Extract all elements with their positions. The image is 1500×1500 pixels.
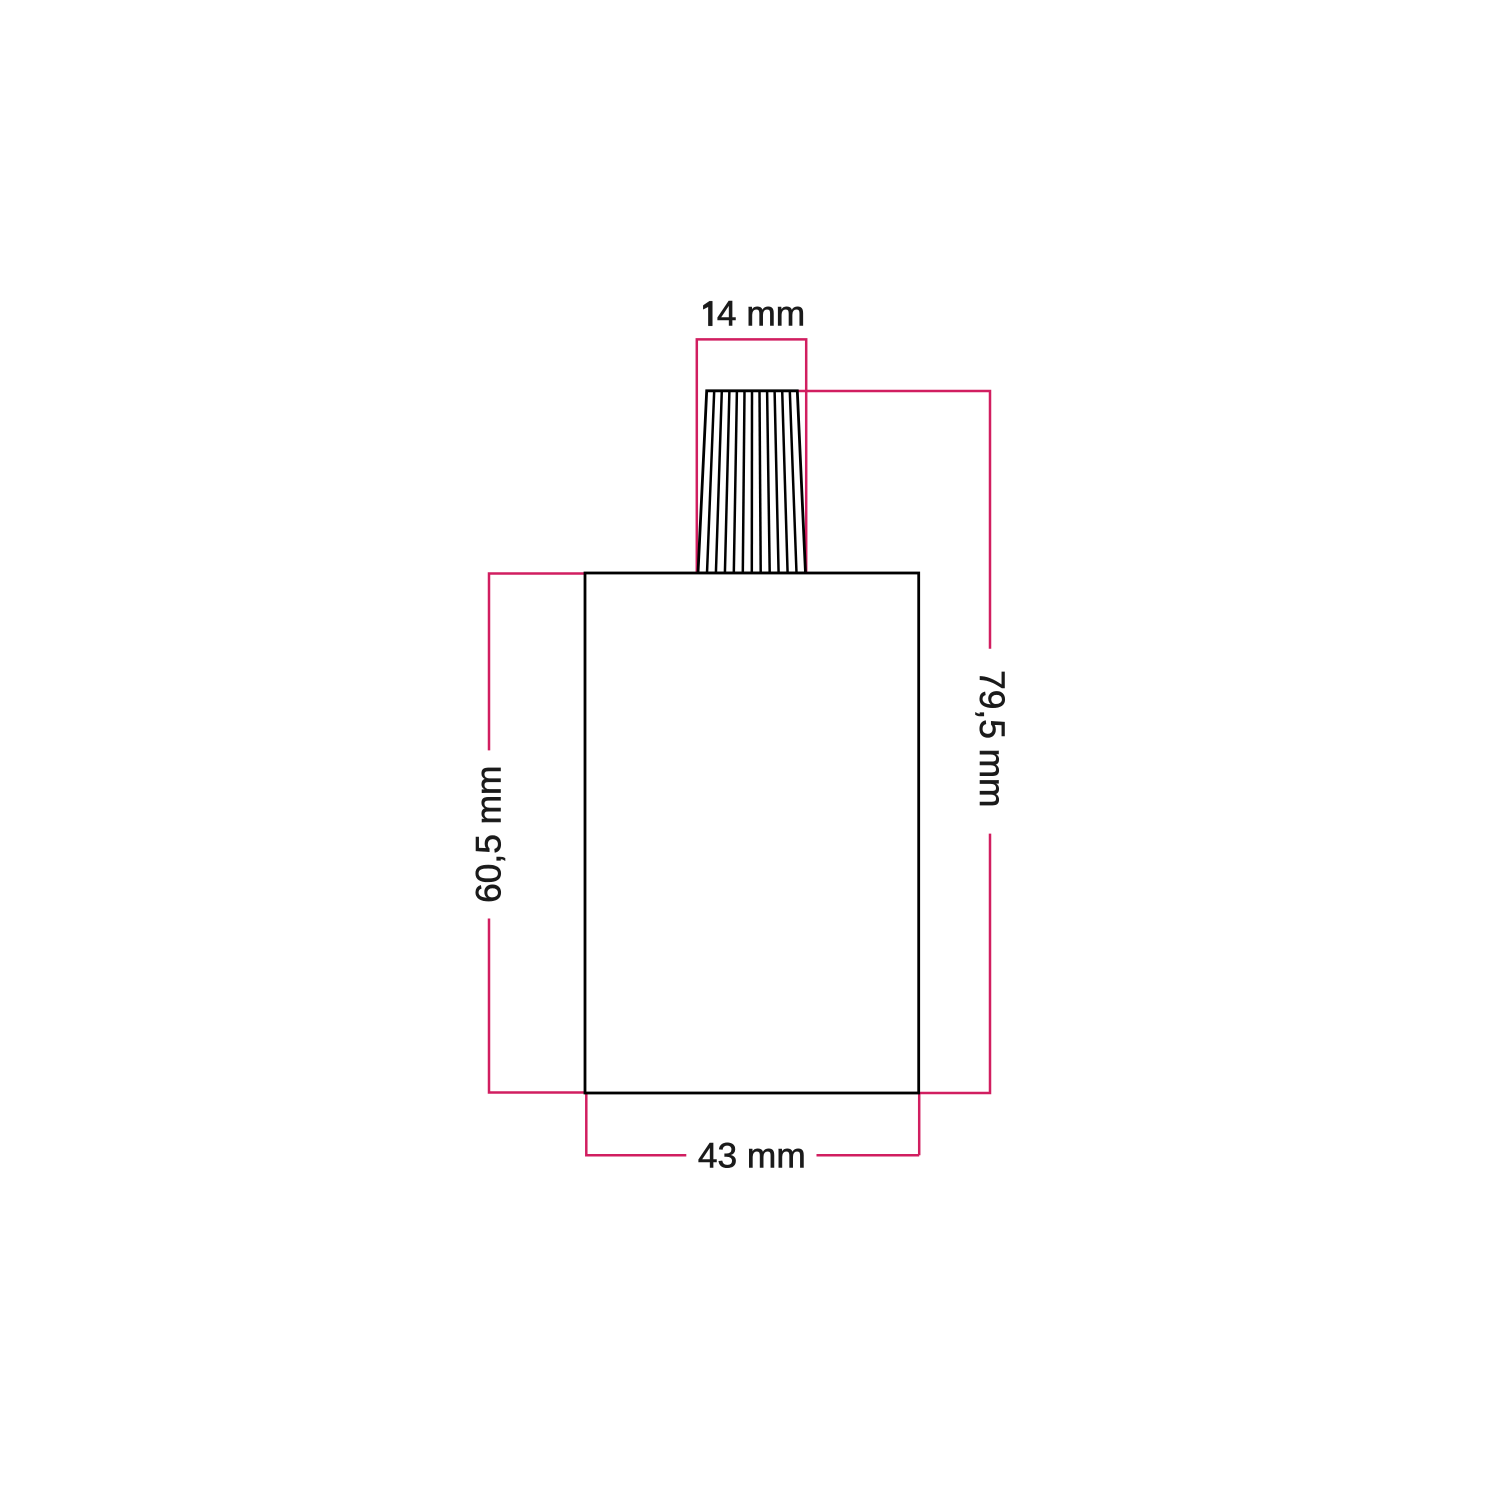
svg-text:4 mm: 4 mm xyxy=(717,295,805,334)
svg-text:60,5 mm: 60,5 mm xyxy=(469,766,508,903)
svg-text:43 mm: 43 mm xyxy=(698,1137,806,1176)
svg-text:79,5 mm: 79,5 mm xyxy=(972,670,1011,807)
